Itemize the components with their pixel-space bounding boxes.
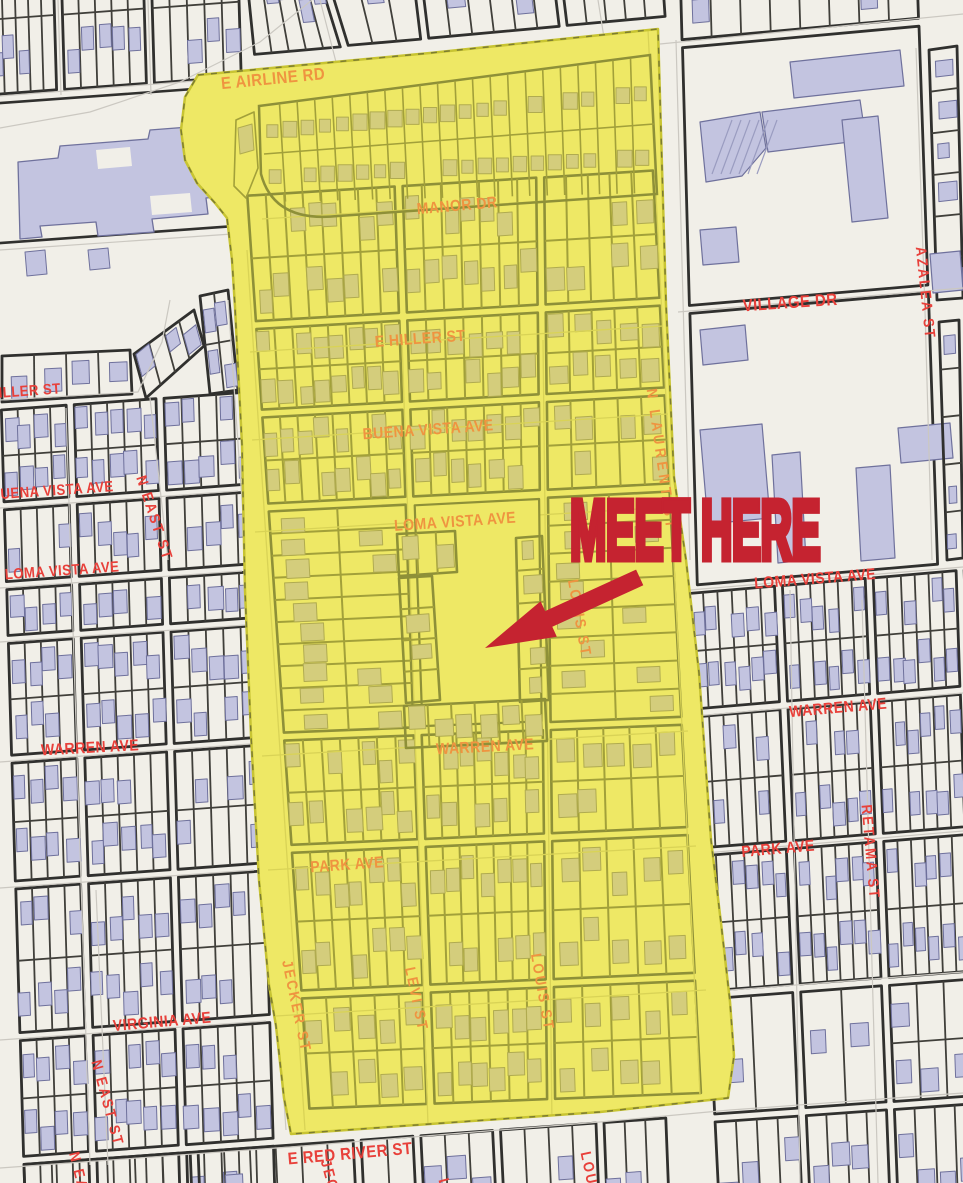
svg-text:MEET HERE: MEET HERE [570, 484, 820, 578]
